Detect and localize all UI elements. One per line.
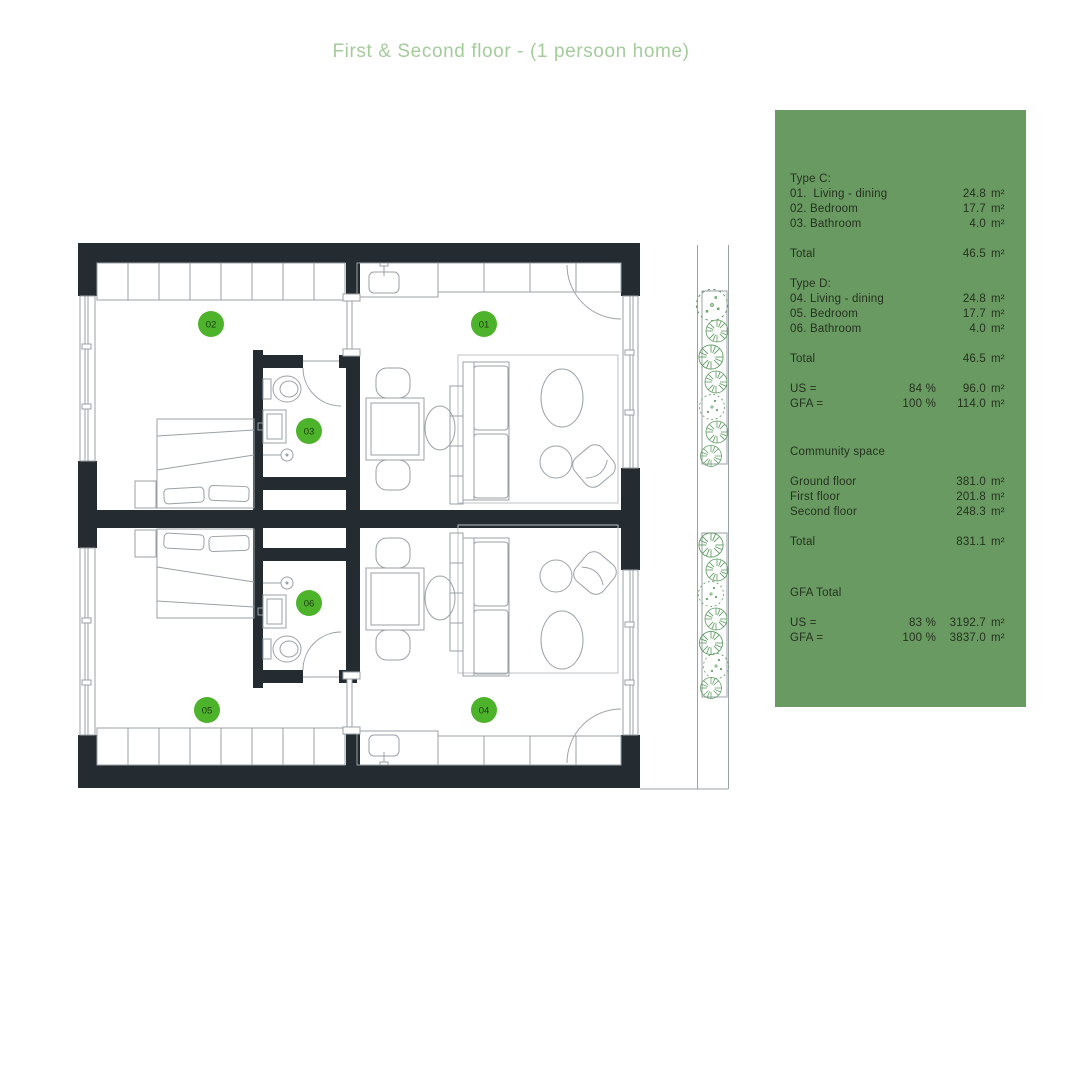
type-d-row-living: 04. Living - dining 24.8 m² [790, 292, 1010, 307]
svg-text:02: 02 [206, 320, 217, 331]
window-left-bottom [80, 548, 95, 735]
bathroom-door-arc-06 [303, 632, 341, 670]
unit-us-row: US = 84 % 96.0 m² [790, 382, 1010, 397]
type-c-row-bedroom: 02. Bedroom 17.7 m² [790, 202, 1010, 217]
room-marker-06: 06 [296, 590, 322, 616]
community-total-row: Total 831.1 m² [790, 535, 1010, 550]
type-d-section: Type D: 04. Living - dining 24.8 m² 05. … [790, 277, 1010, 367]
room-marker-04: 04 [471, 697, 497, 723]
bathroom-06-fixtures [258, 577, 301, 662]
community-header: Community space [790, 445, 1010, 460]
svg-text:04: 04 [479, 706, 490, 717]
svg-text:01: 01 [479, 320, 490, 331]
svg-text:03: 03 [304, 427, 315, 438]
type-d-total-row: Total 46.5 m² [790, 352, 1010, 367]
type-d-row-bedroom: 05. Bedroom 17.7 m² [790, 307, 1010, 322]
room-marker-02: 02 [198, 311, 224, 337]
gfa-total-gfa-row: GFA = 100 % 3837.0 m² [790, 631, 1010, 646]
gfa-total-section: GFA Total US = 83 % 3192.7 m² GFA = 100 … [790, 586, 1010, 646]
room-marker-01: 01 [471, 311, 497, 337]
unit-ratios-section: US = 84 % 96.0 m² GFA = 100 % 114.0 m² [790, 382, 1010, 412]
gfa-total-header: GFA Total [790, 586, 1010, 601]
sink-counter-bottom [357, 731, 621, 765]
plants-bottom [699, 533, 729, 699]
type-c-row-bathroom: 03. Bathroom 4.0 m² [790, 217, 1010, 232]
type-c-header: Type C: [790, 172, 1010, 187]
type-c-row-living: 01. Living - dining 24.8 m² [790, 187, 1010, 202]
type-c-total-row: Total 46.5 m² [790, 247, 1010, 262]
central-door-top [343, 294, 360, 356]
community-section: Community space Ground floor 381.0 m² Fi… [790, 445, 1010, 550]
area-info-panel: Type C: 01. Living - dining 24.8 m² 02. … [775, 110, 1026, 707]
type-d-header: Type D: [790, 277, 1010, 292]
living-01-furniture [366, 355, 619, 504]
window-right-top [623, 296, 638, 468]
wardrobe-bottom [97, 728, 345, 765]
sink-counter-top [357, 263, 621, 297]
community-ground-row: Ground floor 381.0 m² [790, 475, 1010, 490]
community-second-row: Second floor 248.3 m² [790, 505, 1010, 520]
svg-text:06: 06 [304, 599, 315, 610]
bedroom-02-furniture [135, 419, 254, 508]
room-marker-05: 05 [194, 697, 220, 723]
room-marker-03: 03 [296, 418, 322, 444]
bathroom-door-arc-03 [303, 368, 341, 406]
living-04-furniture [366, 525, 620, 676]
community-first-row: First floor 201.8 m² [790, 490, 1010, 505]
gfa-total-us-row: US = 83 % 3192.7 m² [790, 616, 1010, 631]
bedroom-05-furniture [135, 529, 254, 618]
type-d-row-bathroom: 06. Bathroom 4.0 m² [790, 322, 1010, 337]
planting-strip [640, 245, 729, 789]
window-left-top [80, 296, 95, 461]
type-c-section: Type C: 01. Living - dining 24.8 m² 02. … [790, 172, 1010, 262]
unit-gfa-row: GFA = 100 % 114.0 m² [790, 397, 1010, 412]
window-right-bottom [623, 570, 638, 735]
page-title: First & Second floor - (1 persoon home) [0, 41, 1022, 63]
plan-walls [78, 243, 640, 788]
bathroom-03-fixtures [258, 376, 301, 461]
wardrobe-top [97, 263, 345, 300]
svg-text:05: 05 [202, 706, 213, 717]
plants-top [696, 289, 728, 466]
